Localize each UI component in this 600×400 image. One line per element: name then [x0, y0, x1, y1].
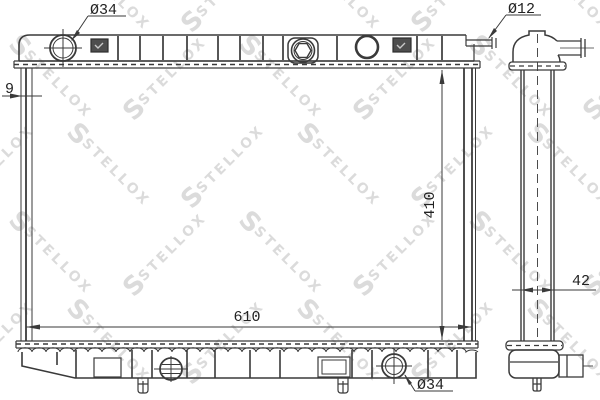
- side-outlet-pipe-bottom: [559, 355, 593, 377]
- top-tank: [14, 29, 496, 68]
- inlet-port: [356, 36, 378, 58]
- top-flange: [14, 61, 480, 68]
- side-top-tank: [509, 31, 594, 70]
- side-view: [506, 31, 594, 391]
- side-bottom-flange: [506, 341, 563, 350]
- bottom-tank-outline: [22, 352, 476, 378]
- side-bottom-tank: [506, 341, 593, 391]
- side-mounting-tab: [533, 378, 541, 391]
- mounting-tab-right: [338, 378, 348, 393]
- top-right-pipe: [466, 35, 496, 61]
- dimension-annotations: Ø34 Ø12 9 410: [2, 1, 596, 394]
- dim-core-width: 610: [26, 309, 472, 330]
- dim-label-side-profile-width: 42: [572, 273, 590, 290]
- label-sticker-right: [393, 38, 411, 52]
- bottom-tank: [16, 341, 478, 393]
- dim-label-core-height: 410: [422, 191, 439, 218]
- dim-bottom-drain-diameter: Ø34: [404, 374, 453, 394]
- dim-top-right-pipe-diameter: Ø12: [488, 1, 541, 39]
- label-sticker-left: [91, 39, 108, 52]
- radiator-core: [21, 68, 476, 341]
- bottom-fitting-left: [94, 358, 121, 377]
- bottom-fitting-right: [318, 357, 350, 377]
- side-column: [521, 34, 554, 341]
- radiator-drawing-canvas: SSTELLOXSSTELLOXSSTELLOXSSTELLOXSSTELLOX…: [0, 0, 600, 400]
- dim-core-thickness: 9: [2, 81, 42, 99]
- radiator-technical-drawing: Ø34 Ø12 9 410: [0, 0, 600, 400]
- dim-core-height: 410: [422, 70, 445, 340]
- filler-cap: [288, 38, 318, 63]
- bottom-flange: [16, 341, 478, 352]
- side-outlet-pipe-top: [557, 38, 594, 58]
- dim-label-core-width: 610: [233, 309, 260, 326]
- mounting-tab-left: [138, 378, 148, 393]
